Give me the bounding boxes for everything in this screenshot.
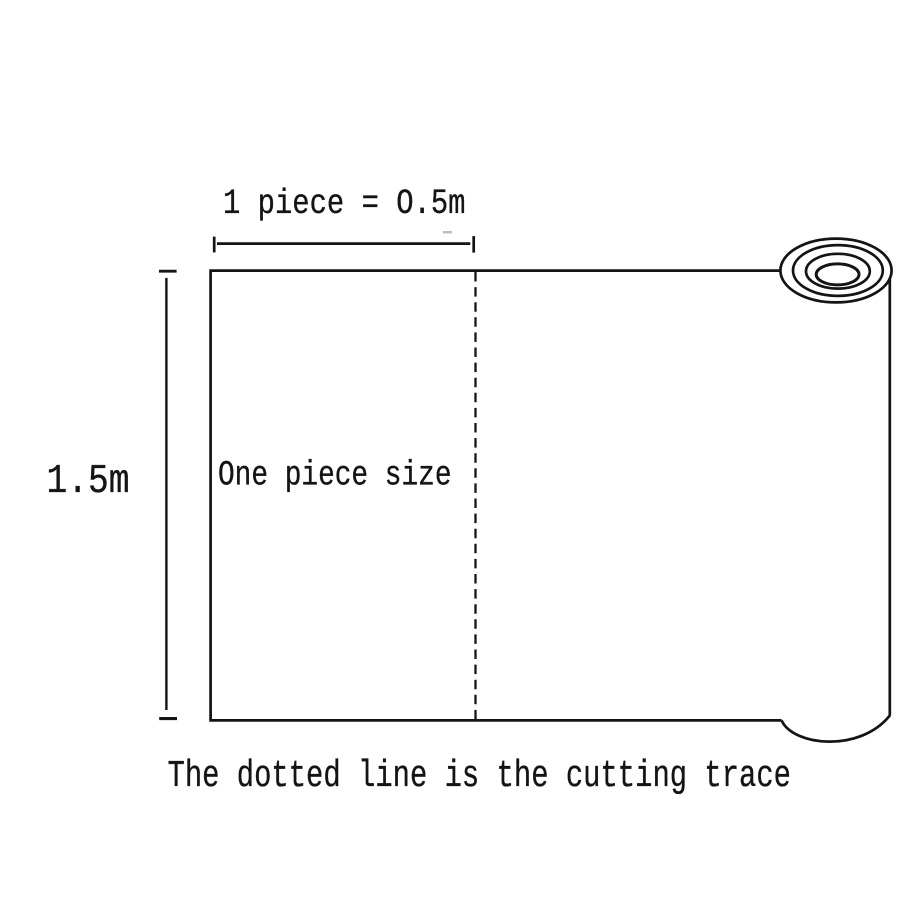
svg-text:One piece size: One piece size <box>218 456 452 496</box>
svg-text:1 piece = O.5m: 1 piece = O.5m <box>223 184 466 224</box>
svg-text:1.5m: 1.5m <box>47 459 130 505</box>
svg-text:The dotted line is the cutting: The dotted line is the cutting trace <box>168 755 792 798</box>
